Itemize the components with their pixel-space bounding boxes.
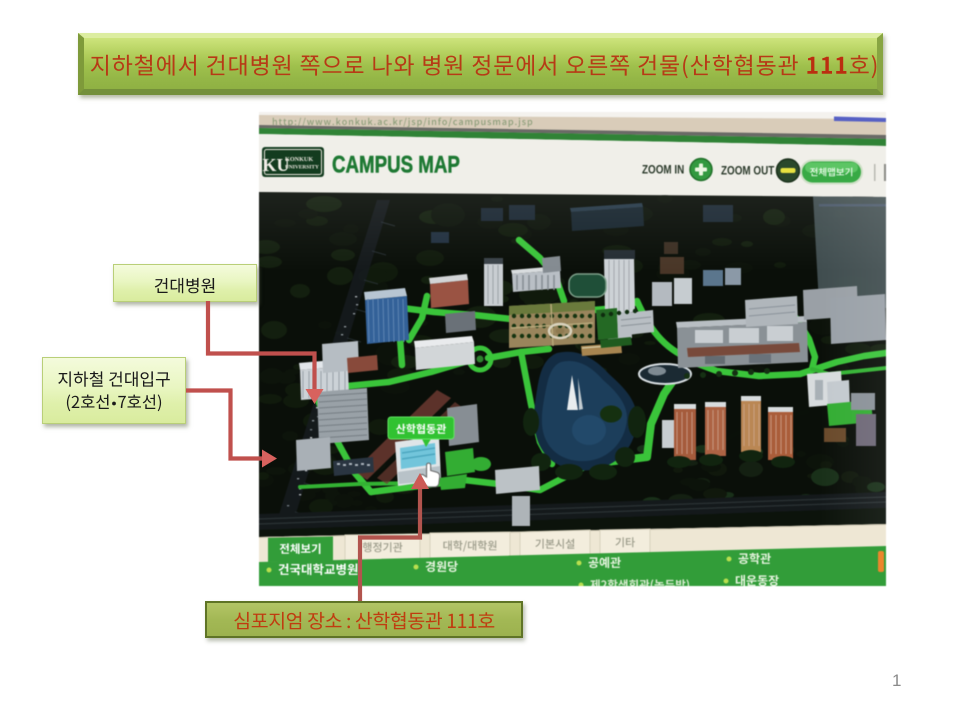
svg-text:ZOOM OUT: ZOOM OUT [721,165,775,178]
svg-text:KONKUK: KONKUK [285,156,313,163]
svg-text:ZOOM IN: ZOOM IN [642,164,685,177]
svg-text:UNIVERSITY: UNIVERSITY [285,165,319,171]
svg-text:CAMPUS MAP: CAMPUS MAP [332,151,460,178]
